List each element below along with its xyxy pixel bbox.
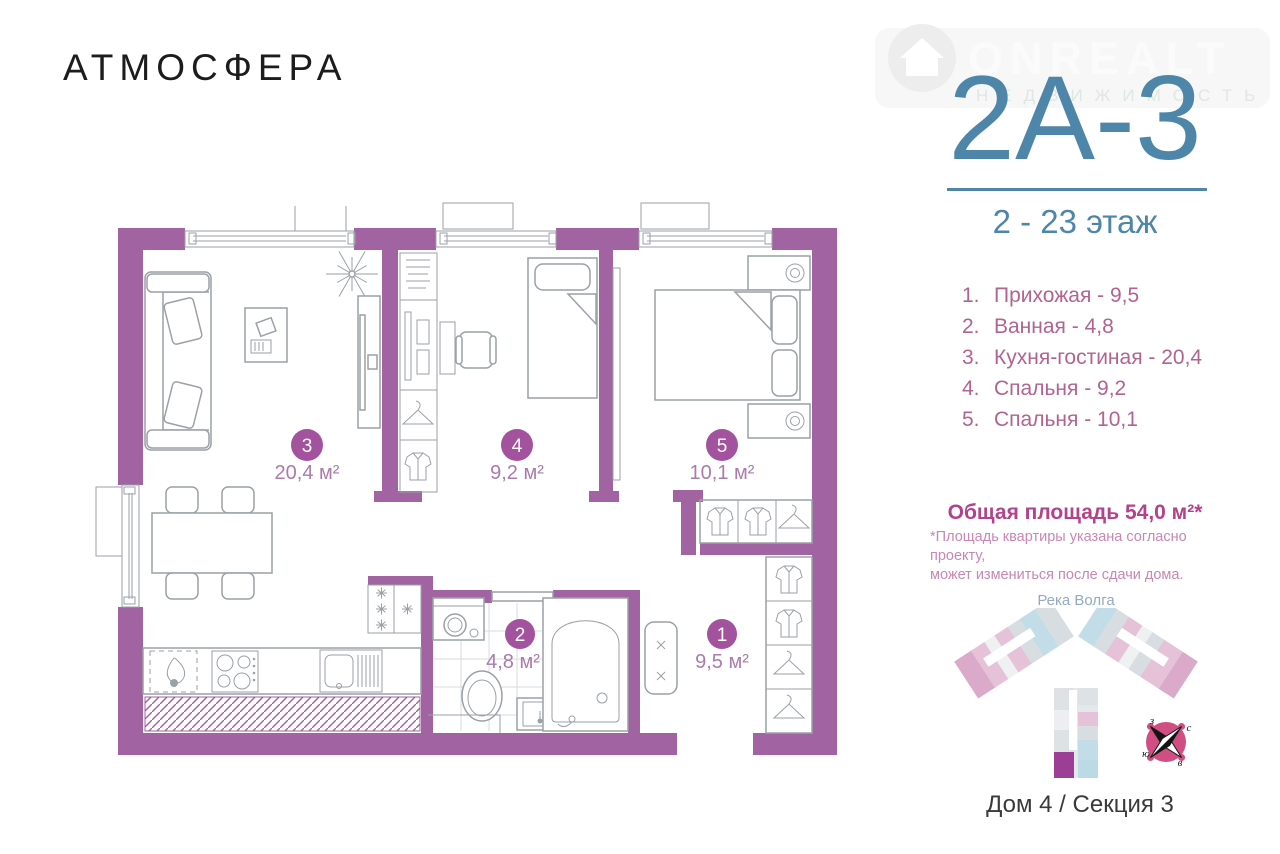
exterior-window-details: [295, 203, 709, 231]
svg-text:3: 3: [302, 436, 313, 457]
highlighted-unit: [1054, 752, 1074, 778]
nightstand: [748, 404, 810, 438]
room-list-label: Спальня - 9,2: [994, 377, 1126, 401]
coffee-table: [245, 308, 287, 362]
chair: [166, 487, 198, 513]
dining-table: [152, 513, 272, 573]
chair: [222, 573, 254, 599]
svg-text:1: 1: [717, 625, 728, 646]
closet-bedroom4: [400, 253, 437, 492]
window-living-room: [185, 231, 355, 247]
vent-star: [376, 620, 387, 631]
shirt-icon: [776, 610, 802, 637]
closet-bedroom5: [700, 500, 812, 543]
river-label: Река Волга: [996, 592, 1156, 609]
ventilation-block: [368, 585, 421, 633]
room-area-label: 9,5 м²: [695, 651, 749, 673]
shirt-icon: [707, 508, 733, 535]
vent-star: [376, 604, 387, 615]
wall-living-bedroom4: [382, 250, 398, 497]
room-list-label: Прихожая - 9,5: [994, 284, 1139, 308]
room-marker-3: 3 20,4 м²: [275, 429, 340, 484]
unit-floor-range: 2 - 23 этаж: [905, 203, 1245, 241]
room-list-item: 2.Ванная - 4,8: [962, 311, 1202, 342]
room-list-number: 5.: [962, 408, 994, 432]
room-list-number: 2.: [962, 315, 994, 339]
room-marker-1: 1 9,5 м²: [695, 619, 749, 673]
unit-code-title: 2А-3: [905, 58, 1245, 178]
room-list-label: Спальня - 10,1: [994, 408, 1138, 432]
exterior-basket: [96, 487, 122, 556]
bedroom5-furniture: [613, 256, 812, 543]
room-list-item: 3.Кухня-гостиная - 20,4: [962, 342, 1202, 373]
site-building-left: [954, 608, 1074, 698]
bedroom4-furniture: [400, 253, 597, 492]
plant-icon: [326, 252, 378, 297]
flame-icon: [167, 658, 184, 683]
washing-machine: [433, 598, 484, 640]
compass-east: в: [1178, 757, 1183, 769]
room-legend-list: 1.Прихожая - 9,5 2.Ванная - 4,8 3.Кухня-…: [962, 280, 1202, 435]
compass-west: з: [1149, 715, 1154, 727]
hatched-shaft: [145, 697, 420, 731]
room-marker-5: 5 10,1 м²: [690, 429, 755, 484]
shoe-bench: [645, 622, 677, 694]
room-list-label: Кухня-гостиная - 20,4: [994, 346, 1202, 370]
bathtub: [543, 598, 628, 731]
shirt-icon: [745, 508, 771, 535]
total-area-disclaimer: *Площадь квартиры указана согласно проек…: [930, 528, 1190, 585]
hallway-closet: [766, 557, 812, 733]
window-bedroom4: [436, 231, 556, 247]
compass-north: с: [1187, 722, 1192, 734]
site-building-right: [1078, 608, 1198, 698]
room-area-label: 20,4 м²: [275, 462, 340, 484]
svg-text:5: 5: [717, 436, 728, 457]
window-bedroom5: [639, 231, 772, 247]
floor-plan: 3 20,4 м² 4 9,2 м² 5 10,1 м² 2 4,8 м² 1: [80, 190, 870, 790]
room-list-number: 3.: [962, 346, 994, 370]
total-area-title: Общая площадь 54,0 м²*: [905, 501, 1245, 525]
tv-console: [358, 296, 380, 428]
shirt-icon: [776, 566, 802, 593]
chair: [166, 573, 198, 599]
double-bed: [655, 290, 800, 400]
room-list-item: 5.Спальня - 10,1: [962, 404, 1202, 435]
hanger-icon: [774, 651, 804, 674]
svg-text:4: 4: [512, 436, 523, 457]
compass-south: ю: [1142, 748, 1150, 760]
window-left-wall: [96, 485, 139, 607]
chair: [222, 487, 254, 513]
hanger-icon: [774, 695, 804, 718]
room-area-label: 9,2 м²: [490, 462, 544, 484]
disclaimer-line-1: *Площадь квартиры указана согласно проек…: [930, 528, 1190, 566]
sliding-door: [613, 268, 620, 480]
hanger-icon: [403, 401, 433, 424]
room-list-label: Ванная - 4,8: [994, 315, 1114, 339]
shirt-icon: [405, 453, 431, 480]
room-list-number: 1.: [962, 284, 994, 308]
hanger-icon: [779, 505, 809, 528]
site-plan: з с ю в: [935, 608, 1205, 788]
unit-title-underline: [947, 188, 1207, 191]
site-building-bottom: [1054, 688, 1098, 778]
developer-logo: АТМОСФЕРА: [63, 47, 347, 89]
room-list-item: 1.Прихожая - 9,5: [962, 280, 1202, 311]
room-marker-4: 4 9,2 м²: [490, 429, 544, 484]
nightstand: [748, 256, 810, 290]
vent-star: [402, 604, 413, 615]
house-section-caption: Дом 4 / Секция 3: [930, 791, 1230, 819]
svg-text:2: 2: [515, 625, 526, 646]
room-area-label: 4,8 м²: [486, 651, 540, 673]
floorplan-page: ONREALT НЕДВИЖИМОСТЬ АТМОСФЕРА 2А-3 2 - …: [0, 0, 1280, 854]
compass-icon: з с ю в: [1130, 706, 1202, 778]
room-list-item: 4.Спальня - 9,2: [962, 373, 1202, 404]
desk: [440, 322, 455, 374]
disclaimer-line-2: может измениться после сдачи дома.: [930, 566, 1190, 585]
room-list-number: 4.: [962, 377, 994, 401]
kitchen-counter: [143, 648, 421, 694]
single-bed: [528, 258, 597, 398]
room-marker-2: 2 4,8 м²: [486, 619, 540, 673]
toilet: [428, 671, 502, 733]
wall-bedroom4-bedroom5: [599, 250, 613, 495]
desk-chair: [456, 332, 496, 368]
kitchen-sink: [320, 650, 382, 692]
room-area-label: 10,1 м²: [690, 462, 755, 484]
cooktop: [212, 651, 258, 692]
vent-star: [376, 588, 387, 599]
dining-set: [152, 487, 272, 599]
